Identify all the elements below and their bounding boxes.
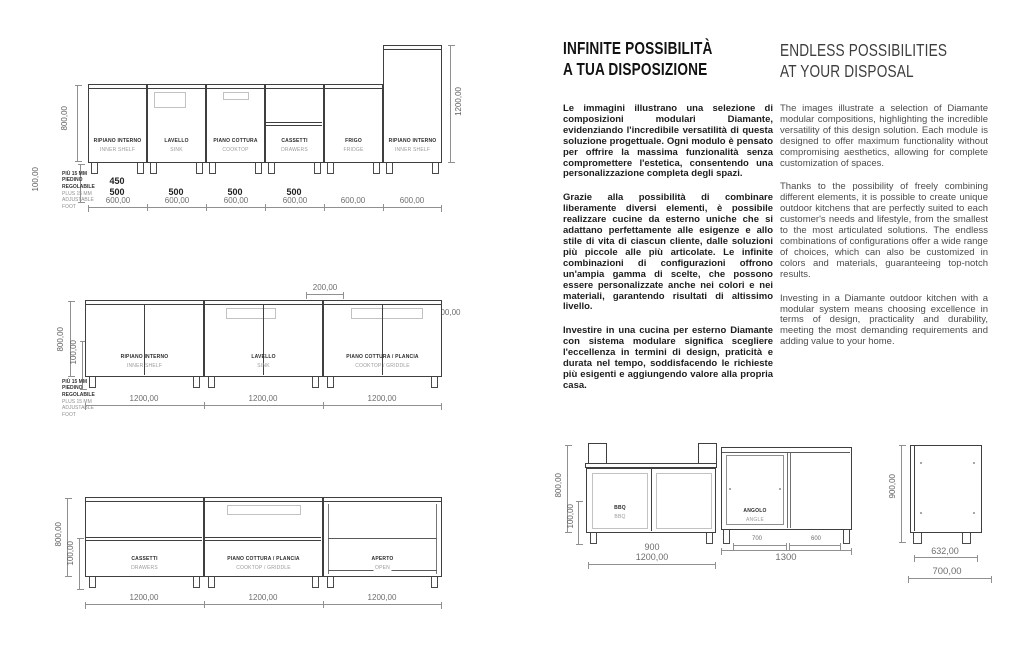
foot xyxy=(327,377,334,388)
dim-tick xyxy=(323,601,324,608)
dim-tick xyxy=(324,204,325,211)
open-side-line xyxy=(328,504,329,574)
module-drawers: CASSETTI DRAWERS xyxy=(85,501,204,577)
dimension-line xyxy=(70,301,71,377)
foot xyxy=(431,377,438,388)
module-label-it: RIPIANO INTERNO xyxy=(389,138,437,144)
foot xyxy=(268,163,275,174)
module-inner-shelf: RIPIANO INTERNO INNER SHELF xyxy=(85,304,204,377)
english-title-line1: ENDLESS POSSIBILITIES xyxy=(780,40,947,60)
dimension-line xyxy=(450,45,451,163)
dim-label-width: 1200,00 xyxy=(130,394,159,403)
dim-tick xyxy=(204,601,205,608)
foot xyxy=(386,163,393,174)
dimension-line xyxy=(85,405,442,406)
english-paragraph-3: Investing in a Diamante outdoor kitchen … xyxy=(780,294,988,349)
foot xyxy=(962,533,971,544)
sink-outline xyxy=(154,92,186,108)
dim-label-width: 600,00 xyxy=(341,196,365,205)
module-label-it: BBQ xyxy=(614,505,626,511)
foot xyxy=(193,377,200,388)
foot-note-italian: PIÙ 15 MM PIEDINO REGOLABILE xyxy=(62,379,95,398)
drawer-divider xyxy=(266,122,322,126)
module-label-en: COOKTOP xyxy=(222,147,248,153)
module-label-it: PIANO COTTURA / PLANCIA xyxy=(227,556,299,562)
dimension-line xyxy=(733,545,787,546)
dim-label-width: 1200,00 xyxy=(636,552,669,562)
dim-tick xyxy=(204,402,205,409)
dim-label-foot: 100,00 xyxy=(69,340,78,364)
foot xyxy=(327,163,334,174)
foot xyxy=(137,163,144,174)
dimension-line xyxy=(79,538,80,590)
dimension-line xyxy=(588,564,716,565)
foot xyxy=(432,163,439,174)
dimension-line xyxy=(578,501,579,545)
module-tall-inner-shelf: RIPIANO INTERNO INNER SHELF xyxy=(383,49,442,163)
cooktop-outline xyxy=(351,308,423,319)
module-label-en: FRIDGE xyxy=(343,147,363,153)
dim-label-top: 200,00 xyxy=(313,283,337,292)
dim-label-width: 1200,00 xyxy=(249,593,278,602)
dim-tick xyxy=(206,204,207,211)
hinge-dot xyxy=(779,488,781,490)
dim-tick xyxy=(323,402,324,409)
foot xyxy=(150,163,157,174)
dimension-line xyxy=(306,294,344,295)
counter-line xyxy=(722,452,850,453)
dim-label-width: 1200,00 xyxy=(249,394,278,403)
english-title: ENDLESS POSSIBILITIES AT YOUR DISPOSAL xyxy=(780,40,942,82)
dim-label-height: 800,00 xyxy=(554,473,563,497)
foot xyxy=(209,163,216,174)
english-title-line2: AT YOUR DISPOSAL xyxy=(780,61,914,81)
cooktop-outline xyxy=(223,92,249,100)
drawer-divider xyxy=(86,537,202,541)
module-label-it: ANGOLO xyxy=(743,508,766,514)
module-sink: LAVELLO SINK xyxy=(147,88,206,163)
door-divider xyxy=(651,469,652,531)
module-label-en: COOKTOP / GRIDDLE xyxy=(236,565,291,571)
module-label-en: OPEN xyxy=(373,565,392,571)
dim-label-foot: 100,00 xyxy=(66,541,75,565)
foot xyxy=(193,577,200,588)
module-label-en: DRAWERS xyxy=(131,565,158,571)
dim-label-total: 1300 xyxy=(775,552,796,563)
sink-outline xyxy=(226,308,276,319)
module-label-en: SINK xyxy=(257,363,269,369)
screw-dot xyxy=(920,462,922,464)
bbq-side-block xyxy=(588,443,607,464)
module-label-en: INNER SHELF xyxy=(395,147,430,153)
dim-label-width: 1200,00 xyxy=(130,593,159,602)
shelf-line xyxy=(328,538,437,539)
dim-label-width: 1200,00 xyxy=(368,394,397,403)
open-side-line xyxy=(436,504,437,574)
foot xyxy=(590,533,597,544)
module-label-it: RIPIANO INTERNO xyxy=(94,138,142,144)
foot xyxy=(314,163,321,174)
panel-divider xyxy=(787,453,788,528)
dim-label-width: 600,00 xyxy=(165,196,189,205)
spacer xyxy=(563,80,773,104)
module-label-it: FRIGO xyxy=(345,138,362,144)
dimension-line xyxy=(85,604,442,605)
foot xyxy=(843,530,850,544)
foot xyxy=(706,533,713,544)
english-paragraph-1: The images illustrate a selection of Dia… xyxy=(780,104,988,169)
dim-label-width: 1200,00 xyxy=(368,593,397,602)
dimension-line xyxy=(789,545,841,546)
dim-label-foot: 100,00 xyxy=(566,504,575,528)
foot xyxy=(312,577,319,588)
module-bbq: BBQ BBQ xyxy=(586,468,716,533)
cooktop-outline xyxy=(227,505,301,515)
dimension-line xyxy=(908,578,992,579)
width-label: 450 xyxy=(109,176,124,186)
foot xyxy=(255,163,262,174)
screw-dot xyxy=(920,512,922,514)
dim-label-width: 700 xyxy=(752,536,762,542)
dim-label-inner-width: 632,00 xyxy=(931,546,959,556)
module-label-en: ANGLE xyxy=(746,517,764,523)
dimension-line xyxy=(721,550,852,551)
dim-label-height: 800,00 xyxy=(54,522,63,546)
dim-label-height: 900,00 xyxy=(888,474,897,498)
panel-divider xyxy=(790,453,791,528)
module-drawers: CASSETTI DRAWERS xyxy=(265,88,324,163)
italian-paragraph-3: Investire in una cucina per esterno Diam… xyxy=(563,326,773,391)
dim-label-outer-width: 700,00 xyxy=(932,566,961,577)
dim-label-width: 600,00 xyxy=(224,196,248,205)
dim-tick xyxy=(147,204,148,211)
dim-label-width: 600,00 xyxy=(283,196,307,205)
foot xyxy=(312,377,319,388)
foot xyxy=(913,533,922,544)
module-label-it: RIPIANO INTERNO xyxy=(121,354,169,360)
english-paragraph-2: Thanks to the possibility of freely comb… xyxy=(780,182,988,280)
door-front-line xyxy=(914,446,915,531)
dim-label-width: 900 xyxy=(644,542,659,552)
dim-label-width: 600,00 xyxy=(400,196,424,205)
module-label-en: DRAWERS xyxy=(281,147,308,153)
dim-label-height: 800,00 xyxy=(60,106,69,130)
door-outline xyxy=(592,473,648,529)
module-label-it: LAVELLO xyxy=(164,138,188,144)
dim-label-width: 600 xyxy=(811,536,821,542)
module-label-en: INNER SHELF xyxy=(127,363,162,369)
module-label-en: COOKTOP / GRIDDLE xyxy=(355,363,410,369)
italian-title-line2: A TUA DISPOSIZIONE xyxy=(563,59,707,79)
dimension-line xyxy=(901,445,902,543)
foot xyxy=(196,163,203,174)
module-label-it: LAVELLO xyxy=(251,354,275,360)
module-sink: LAVELLO SINK xyxy=(204,304,323,377)
module-label-en: BBQ xyxy=(614,514,625,520)
dimension-line xyxy=(914,557,978,558)
dim-label-width: 600,00 xyxy=(106,196,130,205)
foot xyxy=(431,577,438,588)
dim-tick xyxy=(383,204,384,211)
foot-note-english: PLUS 15 MM ADJUSTABLE FOOT xyxy=(62,399,94,418)
door-outline xyxy=(656,473,712,529)
module-angolo: ANGOLO ANGLE xyxy=(721,447,852,530)
foot xyxy=(208,377,215,388)
module-cooktop-griddle: PIANO COTTURA / PLANCIA COOKTOP / GRIDDL… xyxy=(204,501,323,577)
module-open: APERTO OPEN xyxy=(323,501,442,577)
italian-title-line1: INFINITE POSSIBILITÀ xyxy=(563,38,712,58)
hinge-dot xyxy=(729,488,731,490)
bbq-side-block xyxy=(698,443,717,464)
foot xyxy=(89,577,96,588)
module-cooktop-griddle: PIANO COTTURA / PLANCIA COOKTOP / GRIDDL… xyxy=(323,304,442,377)
module-label-it: APERTO xyxy=(370,556,396,562)
foot xyxy=(373,163,380,174)
foot xyxy=(208,577,215,588)
screw-dot xyxy=(973,512,975,514)
module-cooktop: PIANO COTTURA COOKTOP xyxy=(206,88,265,163)
dim-label-foot: 100,00 xyxy=(31,167,40,191)
module-label-it: CASSETTI xyxy=(281,138,307,144)
dimension-line xyxy=(77,85,78,162)
drawer-divider xyxy=(205,537,321,541)
dim-label-height: 800,00 xyxy=(56,327,65,351)
text-column-english: ENDLESS POSSIBILITIES AT YOUR DISPOSAL T… xyxy=(780,40,988,361)
module-label-en: INNER SHELF xyxy=(100,147,135,153)
italian-paragraph-1: Le immagini illustrano una selezione di … xyxy=(563,104,773,180)
screw-dot xyxy=(973,462,975,464)
catalog-page: 800,00 100,00 1200,00 RIPIANO INTERNO IN… xyxy=(0,0,1024,666)
cabinet-side-view xyxy=(910,445,982,533)
spacer xyxy=(780,82,988,104)
module-label-it: PIANO COTTURA xyxy=(213,138,257,144)
module-label-it: PIANO COTTURA / PLANCIA xyxy=(346,354,418,360)
module-label-it: CASSETTI xyxy=(131,556,157,562)
foot-note-italian: PIÙ 15 MM PIEDINO REGOLABILE xyxy=(62,171,95,190)
door-outline xyxy=(726,455,784,525)
dim-label-tall: 1200,00 xyxy=(454,87,463,116)
module-fridge: FRIGO FRIDGE xyxy=(324,88,383,163)
foot xyxy=(327,577,334,588)
dim-tick xyxy=(265,204,266,211)
foot xyxy=(723,530,730,544)
text-column-italian: INFINITE POSSIBILITÀ A TUA DISPOSIZIONE … xyxy=(563,38,773,405)
italian-title: INFINITE POSSIBILITÀ A TUA DISPOSIZIONE xyxy=(563,38,727,80)
module-label-en: SINK xyxy=(170,147,182,153)
module-inner-shelf: RIPIANO INTERNO INNER SHELF xyxy=(88,88,147,163)
italian-paragraph-2: Grazie alla possibilità di combinare lib… xyxy=(563,193,773,313)
